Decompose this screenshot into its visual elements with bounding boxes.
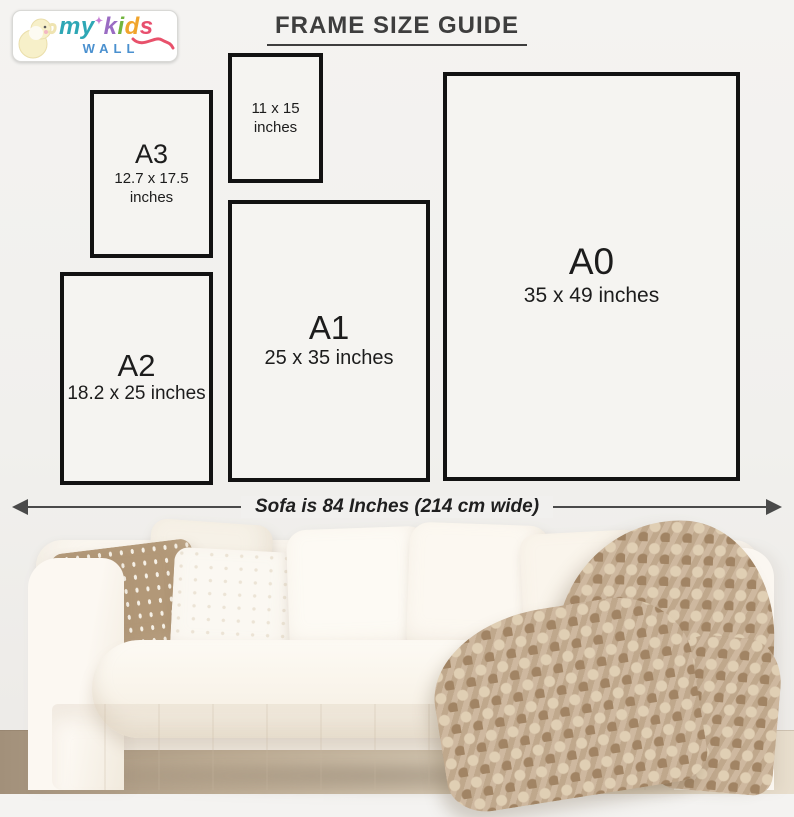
header: FRAME SIZE GUIDE xyxy=(0,12,794,46)
frame-a3: A3 12.7 x 17.5 inches xyxy=(90,90,213,258)
frame-label: A3 xyxy=(135,140,168,168)
frame-a1: A1 25 x 35 inches xyxy=(228,200,430,482)
sofa-width-measure: Sofa is 84 Inches (214 cm wide) xyxy=(12,492,782,522)
page-title: FRAME SIZE GUIDE xyxy=(267,12,527,46)
frame-size-line1: 18.2 x 25 inches xyxy=(67,382,205,407)
frame-size-line1: 12.7 x 17.5 xyxy=(114,169,188,189)
arrow-right-icon xyxy=(766,499,782,515)
frame-size-line1: 11 x 15 xyxy=(251,99,299,119)
frame-size-line1: 35 x 49 inches xyxy=(524,282,659,309)
frame-size-line2: inches xyxy=(130,188,173,208)
frame-size-line2: inches xyxy=(254,118,297,138)
frame-label: A1 xyxy=(309,311,349,346)
frame-label: A0 xyxy=(569,243,614,282)
arrow-left-icon xyxy=(12,499,28,515)
frame-size-line1: 25 x 35 inches xyxy=(265,345,394,371)
frame-11x15: 11 x 15 inches xyxy=(228,53,323,183)
frame-a0: A0 35 x 49 inches xyxy=(443,72,740,481)
frame-a2: A2 18.2 x 25 inches xyxy=(60,272,213,485)
measure-label: Sofa is 84 Inches (214 cm wide) xyxy=(241,496,553,518)
frame-label: A2 xyxy=(118,350,156,383)
